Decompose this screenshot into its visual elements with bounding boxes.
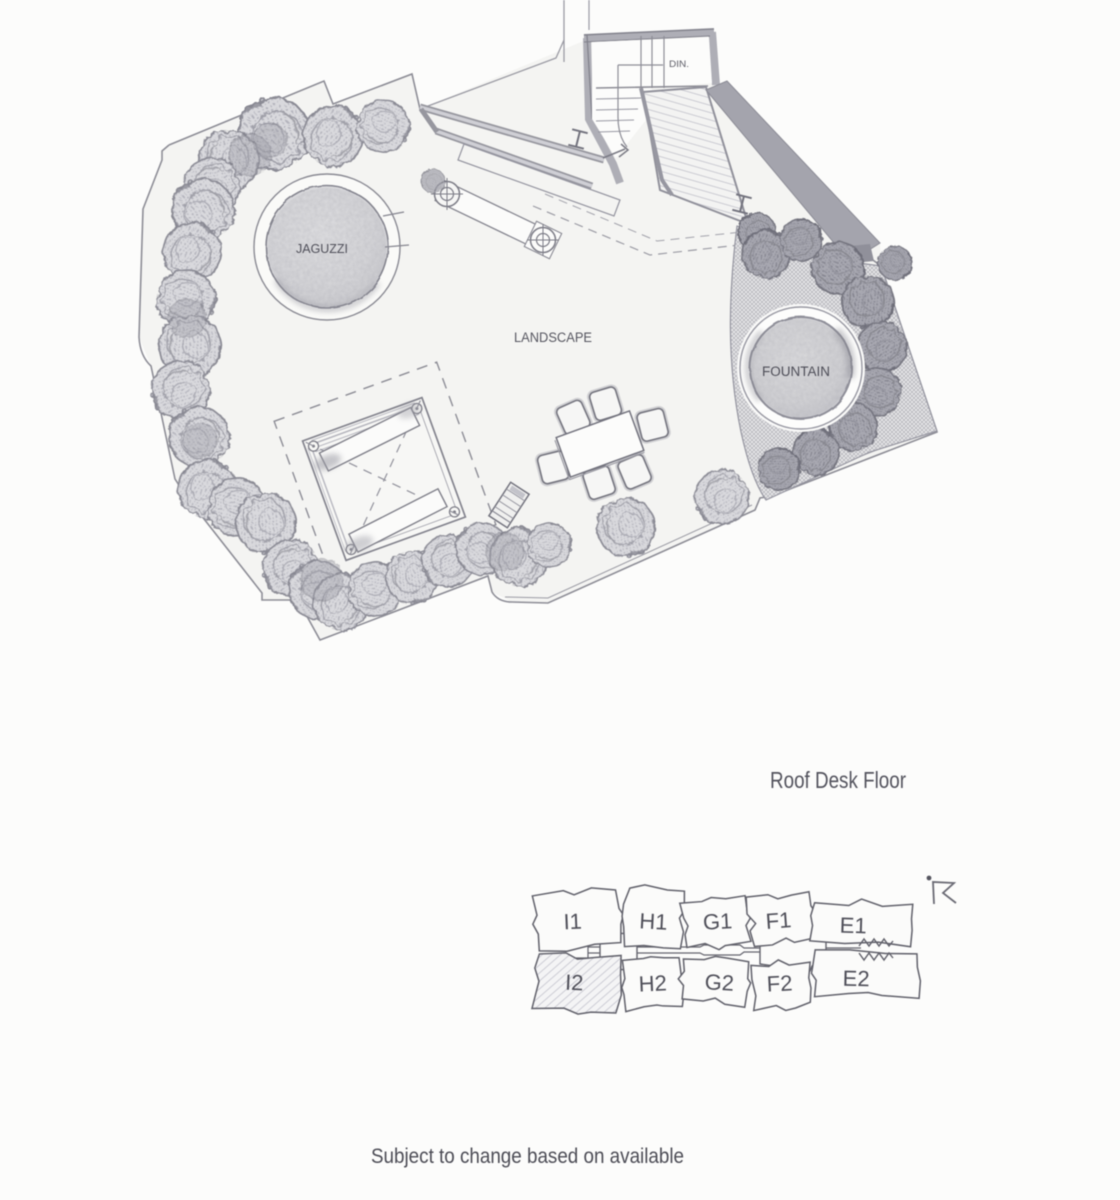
svg-text:E1: E1 [839,913,867,939]
svg-text:H2: H2 [638,970,667,996]
svg-text:F2: F2 [766,970,793,996]
svg-text:E2: E2 [842,966,869,992]
svg-text:I1: I1 [563,909,582,935]
svg-text:F1: F1 [765,907,792,934]
svg-text:H1: H1 [639,908,668,934]
svg-text:G2: G2 [704,969,735,996]
svg-text:LANDSCAPE: LANDSCAPE [514,330,592,345]
svg-text:FOUNTAIN: FOUNTAIN [762,364,830,379]
svg-text:Subject to change based on ava: Subject to change based on available [371,1144,684,1168]
svg-text:G1: G1 [702,908,733,935]
svg-text:JAGUZZI: JAGUZZI [296,241,348,256]
svg-text:Roof Desk Floor: Roof Desk Floor [770,767,906,793]
svg-text:DIN.: DIN. [669,59,689,70]
svg-text:I2: I2 [565,970,584,996]
